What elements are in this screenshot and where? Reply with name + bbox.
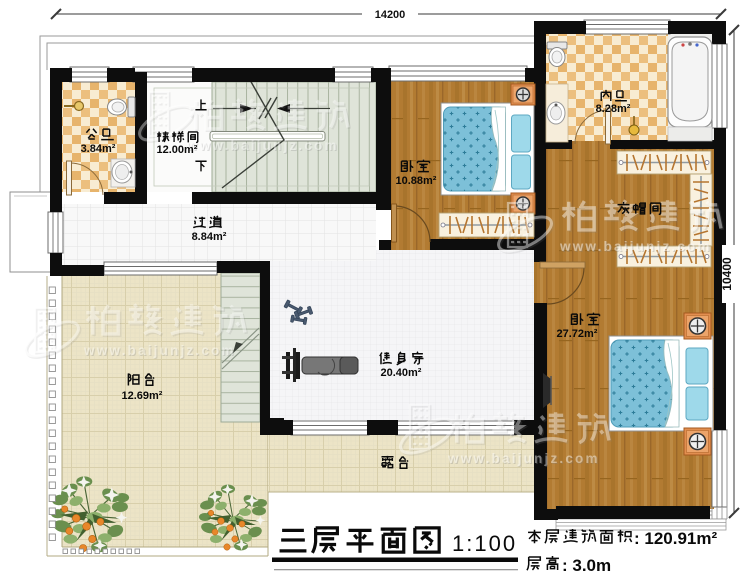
svg-text:8.28m²: 8.28m² [596,103,631,115]
svg-text:3.84m²: 3.84m² [81,143,116,155]
svg-text:: 3.0m: : 3.0m [562,556,611,575]
svg-text:10.88m²: 10.88m² [396,175,437,187]
svg-text:1:100: 1:100 [452,531,517,556]
svg-text:: 120.91m²: : 120.91m² [634,529,717,548]
svg-text:10400: 10400 [720,257,734,291]
svg-text:12.69m²: 12.69m² [122,390,163,402]
svg-text:27.72m²: 27.72m² [557,328,598,340]
svg-text:12.00m²: 12.00m² [157,144,198,156]
svg-text:8.84m²: 8.84m² [192,231,227,243]
svg-text:14200: 14200 [375,9,406,21]
svg-text:20.40m²: 20.40m² [381,367,422,379]
